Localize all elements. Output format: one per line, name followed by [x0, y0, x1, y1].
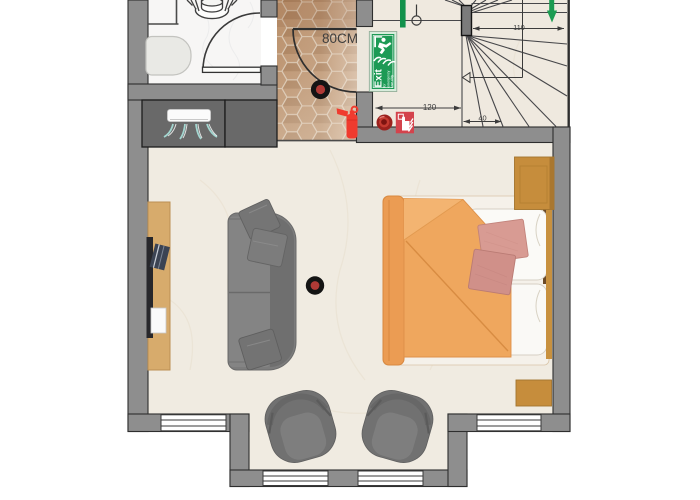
svg-text:40: 40 — [478, 114, 486, 123]
svg-text:use only: use only — [390, 75, 394, 88]
svg-text:120: 120 — [423, 103, 437, 112]
svg-text:110: 110 — [513, 23, 524, 32]
svg-text:80CM: 80CM — [322, 31, 358, 46]
